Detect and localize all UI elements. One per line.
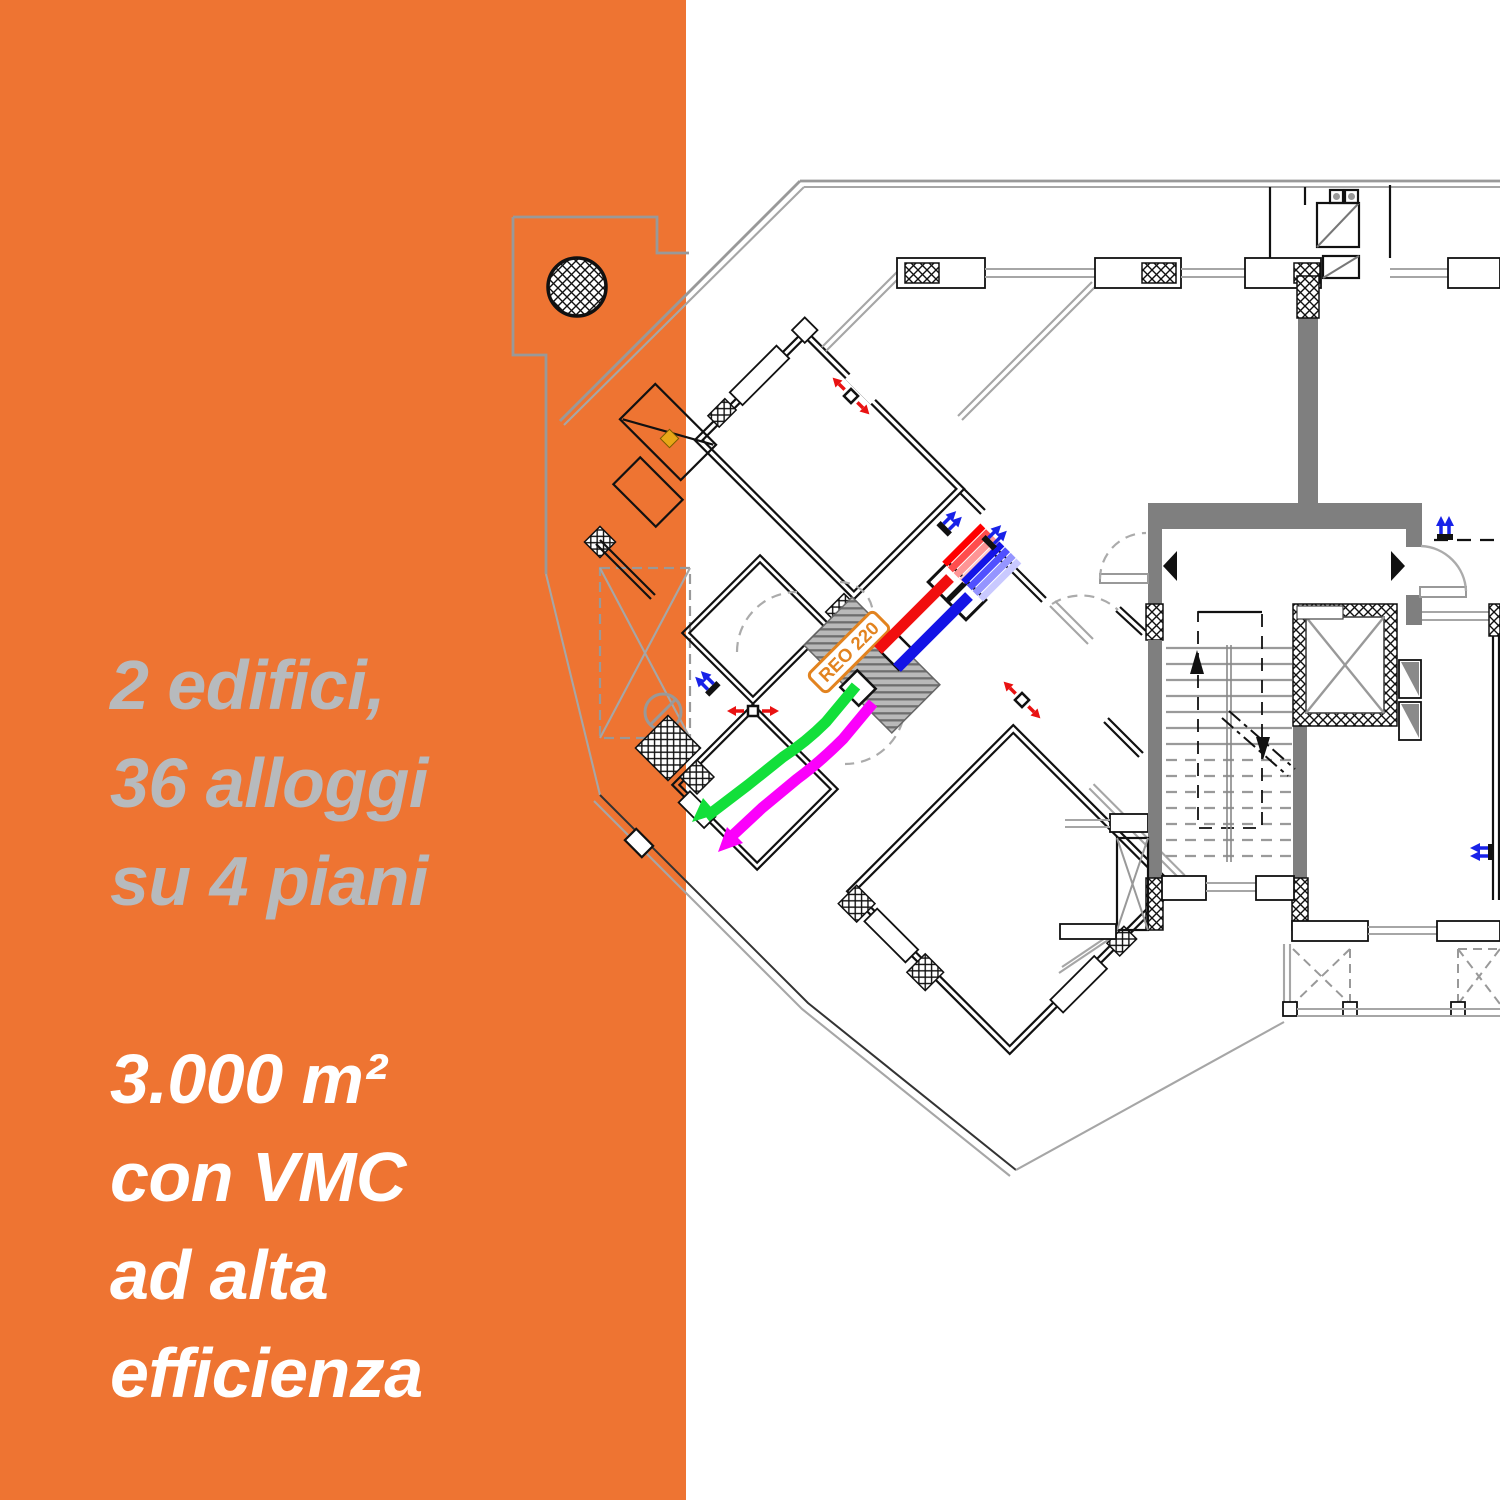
stairs	[1166, 612, 1295, 862]
landing-arrow-left	[1163, 551, 1177, 581]
floor-plan-drawing: REO 220	[0, 0, 1500, 1500]
wing-room-north	[688, 317, 970, 599]
tree-symbol	[548, 258, 606, 316]
door-core-east	[1420, 540, 1500, 597]
balcony-x-brace-1	[1293, 949, 1350, 1004]
landing-arrow-right	[1391, 551, 1405, 581]
corridor-walls	[822, 272, 1148, 832]
balcony-x-brace-2	[1458, 949, 1500, 1004]
stair-up-arrow	[1190, 650, 1204, 674]
stair-down-arrow	[1256, 737, 1270, 760]
elevator-shaft	[1293, 604, 1421, 740]
wing-room-south	[836, 714, 1192, 1070]
window-band-top	[897, 258, 1500, 288]
door-marker-yellow	[660, 429, 678, 447]
structural-wall-north	[1297, 276, 1319, 506]
door-core-corridor	[1100, 533, 1148, 583]
closet-furniture	[613, 384, 716, 527]
exhaust-duct-magenta	[718, 703, 873, 852]
